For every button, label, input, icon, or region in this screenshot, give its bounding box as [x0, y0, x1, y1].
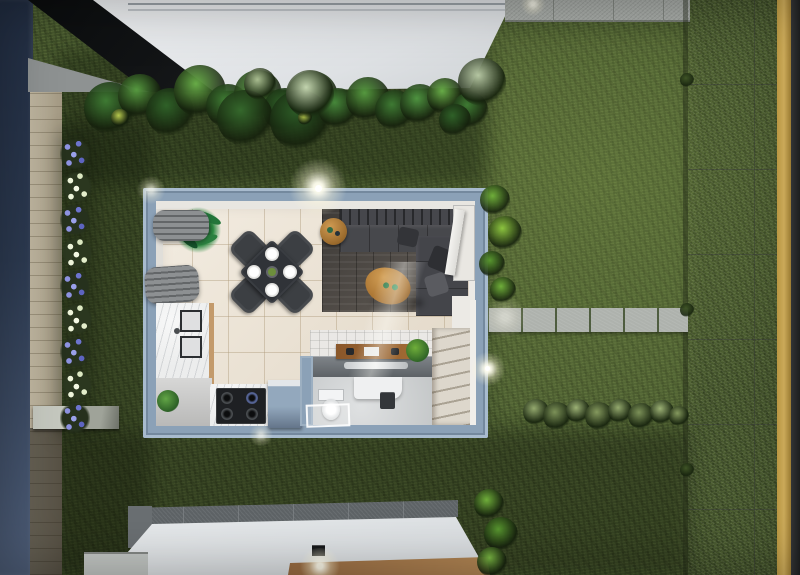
burner [246, 392, 258, 404]
coffee-table-cup [391, 283, 399, 291]
roof-parapet-line [128, 3, 510, 5]
dinner-plate [265, 283, 279, 297]
street-yellow-line [777, 0, 791, 575]
dinner-plate [265, 247, 279, 261]
concrete-step [84, 552, 148, 575]
wood-desk-organizer [336, 344, 412, 359]
dinner-plate [247, 265, 261, 279]
wall-light [485, 366, 490, 371]
stepping-stone-path [487, 308, 688, 332]
burner [246, 408, 258, 420]
side-table-decor [327, 227, 333, 233]
side-table-decor [335, 231, 340, 236]
roof-parapet-line [128, 9, 510, 11]
counter-plant [157, 390, 179, 412]
sidewalk-seam [613, 0, 614, 22]
staircase [432, 328, 472, 425]
waste-bin [380, 392, 395, 409]
coffee-table-cup [382, 282, 390, 290]
street-pavement [688, 0, 777, 575]
sink-faucet [174, 328, 180, 334]
organizer-item [346, 348, 354, 355]
desk-plant [406, 339, 429, 362]
sidewalk-seam [663, 0, 664, 22]
bath-mat [306, 403, 351, 428]
burner [221, 392, 233, 404]
stair-side-wall [470, 300, 476, 425]
organizer-item [391, 348, 399, 355]
dinner-plate [283, 265, 297, 279]
brick-path-shadow [30, 428, 62, 575]
side-table [320, 218, 347, 245]
wall-light [315, 185, 322, 192]
organizer-card [364, 347, 379, 356]
table-centerpiece [268, 268, 276, 276]
street-curb-shadow [683, 0, 688, 575]
sectional-sofa-back [340, 209, 458, 226]
sidewalk-seam [553, 0, 554, 22]
burner [221, 408, 233, 420]
top-sidewalk [505, 0, 690, 22]
counter-wood-trim [209, 303, 214, 389]
window-curtain [144, 264, 200, 305]
kitchen-sink [180, 310, 202, 332]
kitchen-sink [180, 336, 202, 358]
desk-tray [344, 362, 408, 369]
window-curtain [153, 210, 209, 241]
street-asphalt-edge [791, 0, 800, 575]
kitchen-island [268, 380, 302, 428]
sofa-pillow [396, 226, 419, 248]
street-seam-vertical [754, 0, 755, 575]
bottom-wall-light [312, 545, 325, 556]
side-ledge [33, 406, 119, 429]
scene-render [0, 0, 800, 575]
gas-cooktop [216, 388, 266, 424]
